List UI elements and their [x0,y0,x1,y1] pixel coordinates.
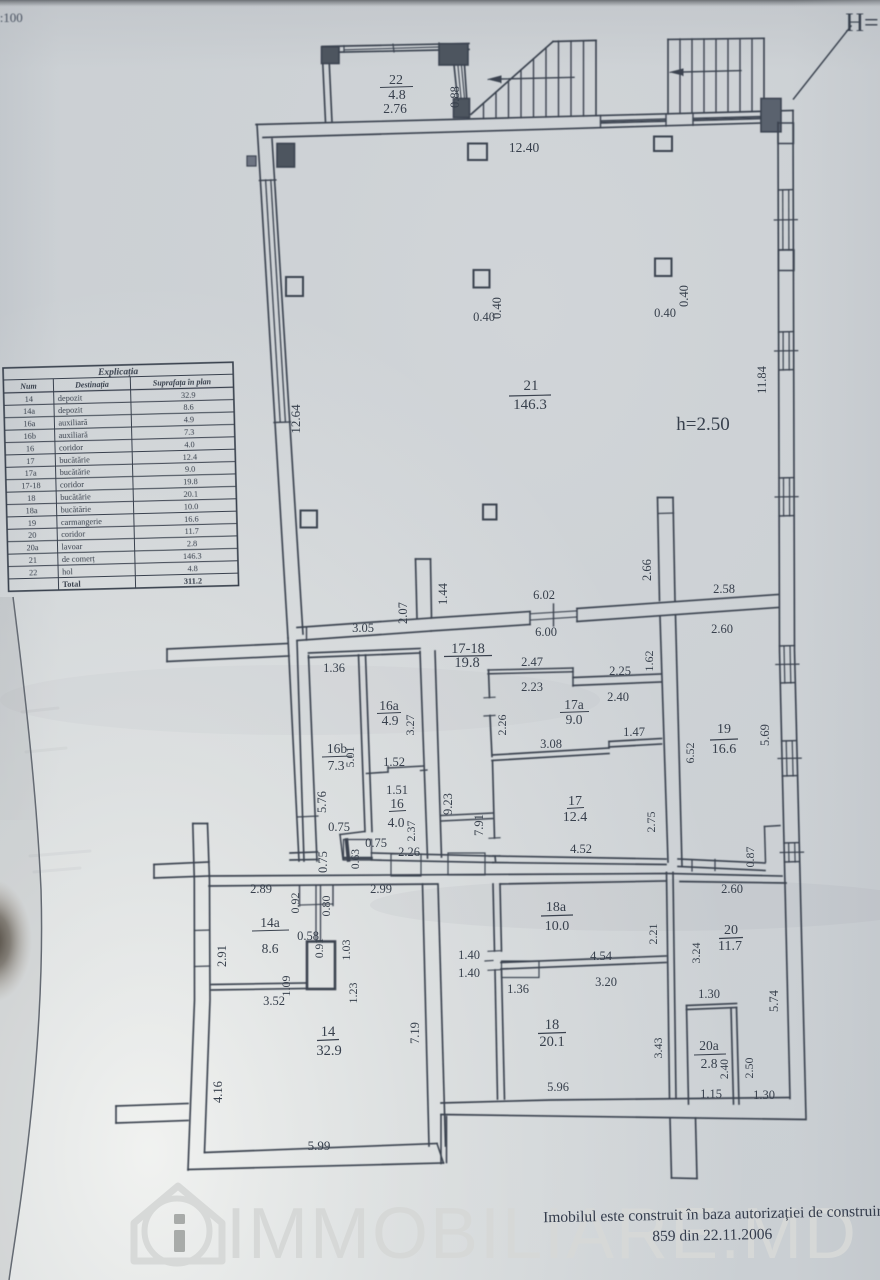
svg-text:19.8: 19.8 [454,655,479,671]
svg-text:2.58: 2.58 [713,582,735,596]
svg-text:2.76: 2.76 [383,101,407,116]
svg-text:4.54: 4.54 [590,949,613,963]
svg-text:hol: hol [62,567,74,576]
svg-text:4.0: 4.0 [184,440,195,449]
svg-text:16.6: 16.6 [184,514,199,523]
svg-text:2.07: 2.07 [396,602,410,624]
svg-text:5.69: 5.69 [758,724,772,746]
svg-text:0.80: 0.80 [319,896,333,917]
svg-text:depozit: depozit [58,393,83,403]
svg-text:1.47: 1.47 [623,725,645,739]
svg-text:4.16: 4.16 [211,1081,225,1103]
svg-text:21: 21 [524,378,539,394]
svg-text:19.8: 19.8 [183,477,198,486]
svg-text:2.40: 2.40 [607,690,629,704]
svg-text:Destinația: Destinația [74,380,109,390]
svg-text:14: 14 [25,395,34,404]
svg-text:12.40: 12.40 [509,140,540,155]
svg-text:4.9: 4.9 [382,713,399,728]
svg-text:9.0: 9.0 [185,465,196,474]
svg-text:18a: 18a [546,900,567,915]
svg-text:0.88: 0.88 [448,86,462,108]
svg-text:2.99: 2.99 [370,882,392,896]
svg-text:Total: Total [62,579,81,588]
svg-text:1.51: 1.51 [386,783,408,797]
svg-text:311.2: 311.2 [184,576,202,585]
svg-text:18: 18 [545,1017,560,1033]
svg-text:3.08: 3.08 [540,737,562,751]
svg-text:Num: Num [19,382,37,391]
svg-text:0.75: 0.75 [328,820,350,834]
svg-text:11.84: 11.84 [755,365,769,393]
svg-text:9.0: 9.0 [566,712,583,727]
svg-text:1.40: 1.40 [458,948,480,962]
svg-text:16b: 16b [327,741,348,756]
svg-text:1.23: 1.23 [346,983,360,1004]
svg-text:1.36: 1.36 [507,982,529,996]
svg-text:0.40: 0.40 [473,310,495,324]
svg-text:coridor: coridor [61,530,85,540]
svg-text:3.20: 3.20 [595,975,617,989]
svg-text:14: 14 [321,1024,336,1040]
svg-text:2.8: 2.8 [187,539,198,548]
svg-text:16b: 16b [23,432,36,441]
svg-text:20.1: 20.1 [539,1034,564,1050]
svg-text:2.89: 2.89 [250,882,272,896]
svg-text:4.0: 4.0 [388,815,405,830]
svg-text:12.4: 12.4 [182,452,198,461]
svg-text:Explicația: Explicația [97,367,139,378]
svg-text:32.9: 32.9 [316,1043,341,1059]
svg-text:h=2.50: h=2.50 [676,414,729,435]
svg-text:auxiliară: auxiliară [59,430,89,440]
svg-text:1.40: 1.40 [458,966,480,980]
svg-text:bucătărie: bucătărie [59,455,90,465]
svg-text:19: 19 [28,519,37,528]
svg-text:17a: 17a [564,697,584,712]
svg-text:3.05: 3.05 [352,621,374,635]
svg-text:depozit: depozit [58,406,83,416]
svg-text:1.30: 1.30 [753,1088,775,1102]
svg-text:16: 16 [390,796,404,811]
svg-text:de comerț: de comerț [62,554,96,564]
svg-text:32.9: 32.9 [181,390,196,399]
svg-text:bucătărie: bucătărie [60,468,91,478]
svg-text:1.15: 1.15 [700,1087,722,1101]
svg-text:2.50: 2.50 [742,1058,756,1079]
svg-text:3.43: 3.43 [651,1038,665,1059]
svg-text:5.74: 5.74 [767,989,781,1012]
svg-text:coridor: coridor [60,480,84,490]
svg-text:3.27: 3.27 [403,715,417,736]
svg-text:0.75: 0.75 [365,836,387,850]
svg-text:7.91: 7.91 [472,814,486,836]
svg-text:0.63: 0.63 [350,849,362,869]
svg-text:22: 22 [389,73,403,88]
svg-text:17a: 17a [25,469,38,478]
svg-text:14a: 14a [260,915,280,930]
svg-text:859 din 22.11.2006: 859 din 22.11.2006 [652,1226,773,1245]
svg-text:10.0: 10.0 [545,919,570,934]
svg-text:21: 21 [29,556,38,565]
svg-text:6.02: 6.02 [533,588,555,602]
svg-text:3.52: 3.52 [263,994,285,1008]
svg-text:14a: 14a [23,407,36,416]
svg-text:10.0: 10.0 [184,502,199,511]
svg-text:20: 20 [724,923,738,938]
svg-text:0.40: 0.40 [677,285,691,307]
svg-text:16a: 16a [23,419,36,428]
svg-text:17: 17 [26,457,35,466]
svg-text:coridor: coridor [59,443,83,453]
svg-text:146.3: 146.3 [513,397,547,413]
svg-text:2.60: 2.60 [721,882,743,896]
svg-text:146.3: 146.3 [183,552,202,561]
svg-text:3.24: 3.24 [689,943,703,964]
svg-text:16a: 16a [379,698,399,713]
svg-text:0.91: 0.91 [314,938,326,958]
svg-text:5.76: 5.76 [315,791,329,813]
svg-text:0.87: 0.87 [743,847,757,868]
svg-text:7.3: 7.3 [184,428,195,437]
svg-text:9.23: 9.23 [441,793,455,815]
svg-text:12.4: 12.4 [563,810,588,825]
svg-text:5.96: 5.96 [547,1080,569,1094]
svg-text:12.64: 12.64 [288,404,303,434]
svg-text:4.9: 4.9 [184,415,195,424]
svg-text:20.1: 20.1 [183,490,198,499]
svg-text:2.21: 2.21 [646,924,660,945]
svg-text:1:100: 1:100 [0,10,23,25]
svg-text:2.40: 2.40 [719,1059,731,1079]
svg-text:bucătărie: bucătărie [60,505,91,515]
svg-text:0.40: 0.40 [654,306,676,320]
svg-text:7.19: 7.19 [408,1022,422,1044]
svg-text:1.52: 1.52 [383,755,405,769]
svg-text:5.99: 5.99 [308,1138,331,1153]
svg-text:16: 16 [26,444,35,453]
svg-text:1.36: 1.36 [323,661,345,675]
svg-text:2.8: 2.8 [701,1056,718,1071]
svg-text:2.47: 2.47 [521,655,543,669]
svg-text:0.92: 0.92 [288,893,302,914]
svg-text:18a: 18a [26,506,39,515]
svg-text:2.26: 2.26 [398,845,420,859]
svg-text:20: 20 [28,531,37,540]
svg-text:17-18: 17-18 [21,481,41,490]
svg-text:4.8: 4.8 [187,564,198,573]
svg-text:carmangerie: carmangerie [61,517,103,527]
svg-text:11.7: 11.7 [718,939,742,954]
svg-text:0.75: 0.75 [316,851,330,873]
svg-text:1.03: 1.03 [339,940,353,961]
svg-text:2.26: 2.26 [495,715,509,736]
svg-text:7.3: 7.3 [328,758,345,773]
svg-text:2.91: 2.91 [215,945,229,967]
svg-text:lavoar: lavoar [61,542,82,552]
svg-text:19: 19 [717,722,731,737]
svg-text:bucătărie: bucătărie [60,492,91,502]
svg-text:20a: 20a [26,543,39,552]
svg-text:1.30: 1.30 [698,987,720,1001]
svg-text:8.6: 8.6 [262,941,279,956]
svg-text:2.60: 2.60 [711,622,733,636]
svg-text:16.6: 16.6 [712,742,737,757]
svg-text:2.37: 2.37 [404,821,418,842]
svg-text:11.7: 11.7 [184,527,198,536]
svg-text:2.66: 2.66 [640,559,654,581]
svg-text:6.52: 6.52 [683,743,697,764]
svg-text:2.25: 2.25 [609,664,631,678]
svg-text:H=: H= [845,8,878,37]
svg-text:22: 22 [29,568,38,577]
svg-text:6.00: 6.00 [535,625,557,639]
svg-text:2.75: 2.75 [644,812,658,833]
svg-text:1.62: 1.62 [642,651,656,672]
svg-text:8.6: 8.6 [183,403,194,412]
svg-text:4.52: 4.52 [570,842,592,856]
svg-text:20a: 20a [699,1038,719,1053]
svg-text:Suprafața în plan: Suprafața în plan [153,377,212,387]
svg-text:17: 17 [568,794,582,809]
svg-text:1.44: 1.44 [436,582,450,605]
svg-text:2.23: 2.23 [521,680,543,694]
svg-text:auxiliară: auxiliară [58,418,88,428]
svg-text:18: 18 [27,494,36,503]
